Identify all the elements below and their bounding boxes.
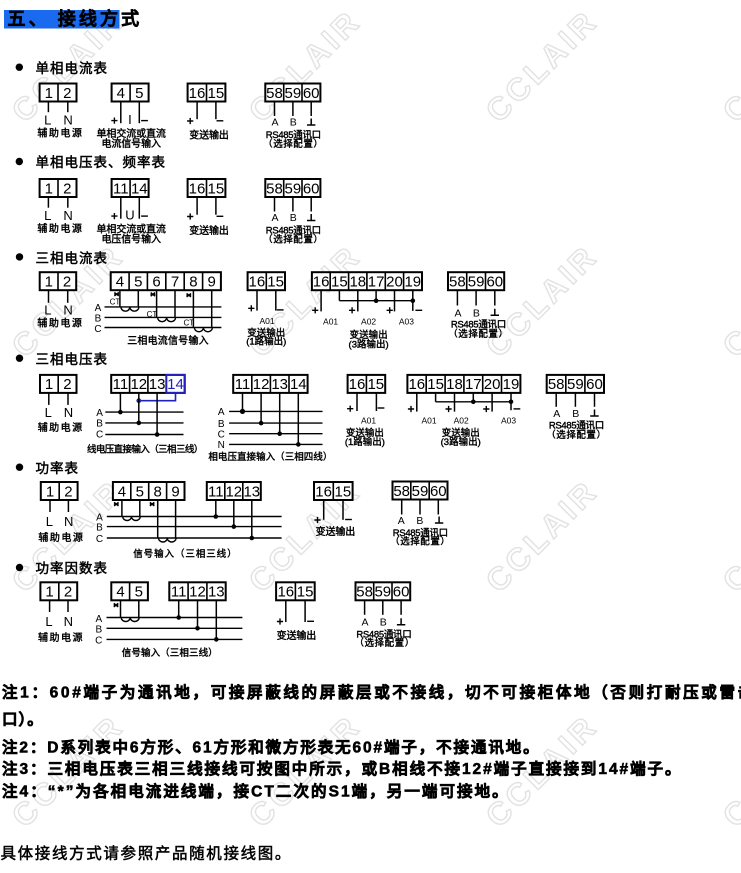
svg-text:59: 59 — [374, 584, 391, 601]
svg-text:A: A — [96, 408, 103, 419]
svg-text:(3路输出): (3路输出) — [441, 436, 481, 448]
svg-text:13: 13 — [149, 376, 166, 393]
svg-text:58: 58 — [266, 85, 283, 102]
svg-text:2: 2 — [63, 85, 71, 102]
svg-text:8: 8 — [189, 274, 197, 291]
svg-text:U: U — [125, 208, 134, 223]
svg-text:相电压直接输入（三相四线）: 相电压直接输入（三相四线） — [208, 451, 332, 463]
svg-text:A: A — [95, 614, 102, 625]
svg-text:五、 接线方式: 五、 接线方式 — [8, 8, 143, 29]
svg-text:（选择配置）: （选择配置） — [546, 429, 606, 441]
svg-text:口）。: 口）。 — [2, 711, 44, 729]
svg-text:11: 11 — [208, 483, 224, 500]
svg-text:59: 59 — [285, 85, 302, 102]
svg-text:14: 14 — [131, 180, 148, 197]
svg-text:单相交流或直流: 单相交流或直流 — [97, 222, 166, 235]
svg-text:59: 59 — [285, 180, 302, 197]
svg-text:15: 15 — [297, 584, 314, 601]
svg-text:2: 2 — [63, 376, 71, 393]
svg-text:A: A — [271, 212, 278, 224]
svg-text:B: B — [95, 625, 102, 636]
svg-text:60: 60 — [586, 376, 603, 393]
svg-text:（选择配置）: （选择配置） — [263, 234, 323, 246]
svg-text:19: 19 — [503, 376, 520, 393]
svg-text:A02: A02 — [454, 415, 469, 425]
svg-text:A01: A01 — [361, 415, 376, 425]
svg-text:N: N — [64, 514, 73, 529]
svg-text:60: 60 — [303, 180, 320, 197]
svg-text:15: 15 — [367, 376, 384, 393]
svg-text:CT: CT — [147, 310, 158, 319]
svg-text:辅助电源: 辅助电源 — [37, 316, 83, 329]
svg-text:(1路输出): (1路输出) — [246, 335, 286, 347]
svg-text:B: B — [96, 419, 103, 430]
svg-text:L: L — [46, 514, 53, 529]
svg-text:59: 59 — [567, 376, 584, 393]
svg-text:辅助电源: 辅助电源 — [38, 421, 84, 434]
svg-text:16: 16 — [189, 85, 206, 102]
svg-text:A: A — [271, 117, 278, 129]
svg-text:变送输出: 变送输出 — [277, 629, 317, 642]
svg-text:5: 5 — [135, 584, 143, 601]
svg-text:60: 60 — [303, 85, 320, 102]
svg-text:N: N — [218, 440, 225, 451]
svg-text:C: C — [96, 534, 103, 545]
svg-text:5: 5 — [135, 85, 143, 102]
svg-text:A: A — [398, 515, 405, 527]
svg-text:20: 20 — [386, 274, 403, 291]
svg-text:注4：“*”为各相电流进线端，接CT二次的S1端，另一端可接: 注4：“*”为各相电流进线端，接CT二次的S1端，另一端可接地。 — [2, 782, 510, 801]
svg-text:电流信号输入: 电流信号输入 — [101, 137, 160, 150]
svg-text:A: A — [454, 307, 461, 319]
svg-text:A01: A01 — [323, 316, 338, 326]
svg-text:辅助电源: 辅助电源 — [38, 531, 84, 544]
svg-text:B: B — [290, 117, 297, 129]
svg-text:14: 14 — [167, 376, 184, 393]
svg-text:9: 9 — [171, 483, 179, 500]
svg-text:三相电流表: 三相电流表 — [36, 251, 109, 266]
svg-text:58: 58 — [266, 180, 283, 197]
svg-text:60: 60 — [486, 274, 503, 291]
svg-text:16: 16 — [313, 274, 330, 291]
svg-text:16: 16 — [277, 584, 294, 601]
svg-text:B: B — [416, 515, 423, 527]
svg-text:15: 15 — [427, 376, 444, 393]
svg-text:2: 2 — [64, 584, 72, 601]
svg-text:12: 12 — [189, 584, 206, 601]
svg-text:13: 13 — [208, 584, 225, 601]
svg-text:16: 16 — [249, 274, 266, 291]
svg-text:5: 5 — [134, 274, 142, 291]
svg-text:A01: A01 — [421, 415, 436, 425]
svg-text:4: 4 — [118, 483, 126, 500]
svg-text:功率因数表: 功率因数表 — [36, 560, 109, 576]
svg-text:11: 11 — [235, 376, 251, 393]
svg-text:B: B — [572, 408, 579, 420]
svg-text:B: B — [380, 617, 387, 629]
svg-text:1: 1 — [45, 376, 53, 393]
svg-text:13: 13 — [243, 483, 260, 500]
svg-text:58: 58 — [548, 376, 565, 393]
svg-text:1: 1 — [45, 584, 53, 601]
svg-text:20: 20 — [484, 376, 501, 393]
svg-text:60: 60 — [430, 483, 447, 500]
svg-text:15: 15 — [267, 274, 284, 291]
svg-text:6: 6 — [152, 274, 160, 291]
svg-text:I: I — [128, 112, 132, 127]
svg-text:单相电压表、频率表: 单相电压表、频率表 — [36, 154, 167, 170]
svg-text:16: 16 — [189, 180, 206, 197]
svg-text:线电压直接输入（三相三线）: 线电压直接输入（三相三线） — [87, 444, 203, 456]
svg-text:2: 2 — [63, 274, 71, 291]
svg-text:11: 11 — [113, 180, 129, 197]
svg-text:CT: CT — [183, 318, 194, 327]
svg-text:变送输出: 变送输出 — [316, 525, 356, 538]
svg-text:A: A — [553, 408, 560, 420]
svg-text:N: N — [63, 303, 72, 318]
svg-text:B: B — [95, 314, 102, 325]
svg-text:16: 16 — [315, 483, 332, 500]
svg-text:5: 5 — [136, 483, 144, 500]
svg-text:（选择配置）: （选择配置） — [263, 138, 323, 150]
svg-text:辅助电源: 辅助电源 — [37, 222, 83, 235]
svg-text:19: 19 — [404, 274, 421, 291]
svg-text:注3：三相电压表三相三线接线可按图中所示，或B相线不接12#: 注3：三相电压表三相三线接线可按图中所示，或B相线不接12#端子直接接到14#端… — [2, 759, 682, 778]
svg-text:（选择配置）: （选择配置） — [448, 328, 508, 340]
svg-text:A02: A02 — [361, 316, 376, 326]
svg-text:18: 18 — [446, 376, 463, 393]
svg-text:三相电压表: 三相电压表 — [36, 352, 109, 367]
svg-text:C: C — [218, 430, 225, 441]
svg-text:N: N — [64, 405, 73, 420]
svg-text:A03: A03 — [399, 316, 414, 326]
svg-text:18: 18 — [349, 274, 366, 291]
svg-text:具体接线方式请参照产品随机接线图。: 具体接线方式请参照产品随机接线图。 — [1, 845, 293, 863]
svg-text:7: 7 — [171, 274, 179, 291]
svg-text:A: A — [218, 407, 225, 418]
svg-text:13: 13 — [271, 376, 288, 393]
svg-text:注2：D系列表中6方形、61方形和微方形表无60#端子，不接: 注2：D系列表中6方形、61方形和微方形表无60#端子，不接通讯地。 — [2, 738, 540, 757]
svg-text:功率表: 功率表 — [36, 460, 80, 476]
svg-text:16: 16 — [408, 376, 425, 393]
svg-text:B: B — [96, 523, 103, 534]
svg-text:59: 59 — [412, 483, 429, 500]
svg-text:11: 11 — [171, 584, 187, 601]
svg-text:信号输入（三相三线）: 信号输入（三相三线） — [133, 548, 237, 560]
svg-text:A: A — [361, 617, 368, 629]
svg-text:1: 1 — [45, 180, 53, 197]
svg-text:4: 4 — [116, 584, 124, 601]
svg-text:单相交流或直流: 单相交流或直流 — [97, 127, 166, 140]
svg-text:注1：60#端子为通讯地，可接屏蔽线的屏蔽层或不接线，切不可: 注1：60#端子为通讯地，可接屏蔽线的屏蔽层或不接线，切不可接柜体地（否则打耐压… — [2, 683, 741, 702]
svg-text:12: 12 — [225, 483, 242, 500]
svg-text:(1路输出): (1路输出) — [345, 436, 385, 448]
svg-text:58: 58 — [356, 584, 373, 601]
svg-text:15: 15 — [208, 180, 225, 197]
svg-text:2: 2 — [63, 180, 71, 197]
svg-text:4: 4 — [116, 274, 124, 291]
svg-text:N: N — [63, 208, 72, 223]
svg-text:58: 58 — [449, 274, 466, 291]
svg-text:C: C — [95, 636, 102, 647]
svg-text:58: 58 — [393, 483, 410, 500]
svg-text:1: 1 — [46, 483, 54, 500]
svg-text:17: 17 — [465, 376, 482, 393]
svg-text:4: 4 — [117, 85, 125, 102]
svg-text:1: 1 — [45, 274, 53, 291]
svg-text:L: L — [44, 208, 51, 223]
svg-text:15: 15 — [335, 483, 352, 500]
svg-text:11: 11 — [113, 376, 129, 393]
svg-text:（选择配置）: （选择配置） — [390, 536, 450, 548]
svg-text:CT: CT — [110, 298, 121, 307]
svg-text:14: 14 — [290, 376, 307, 393]
svg-text:1: 1 — [45, 85, 53, 102]
svg-text:N: N — [63, 112, 72, 127]
svg-text:9: 9 — [208, 274, 216, 291]
svg-text:12: 12 — [253, 376, 270, 393]
svg-text:59: 59 — [468, 274, 485, 291]
svg-text:C: C — [96, 429, 103, 440]
svg-text:N: N — [64, 614, 73, 629]
svg-text:变送输出: 变送输出 — [189, 128, 229, 141]
svg-text:17: 17 — [368, 274, 385, 291]
svg-text:L: L — [45, 614, 52, 629]
svg-text:电压信号输入: 电压信号输入 — [101, 233, 160, 246]
svg-text:(3路输出): (3路输出) — [349, 338, 389, 350]
svg-text:B: B — [218, 419, 225, 430]
svg-text:2: 2 — [64, 483, 72, 500]
svg-text:12: 12 — [130, 376, 147, 393]
svg-text:辅助电源: 辅助电源 — [37, 127, 83, 140]
svg-text:A01: A01 — [259, 316, 274, 326]
svg-text:15: 15 — [331, 274, 348, 291]
svg-text:单相电流表: 单相电流表 — [36, 61, 109, 76]
svg-text:15: 15 — [208, 85, 225, 102]
svg-text:信号输入（三相三线）: 信号输入（三相三线） — [122, 647, 218, 659]
svg-text:L: L — [44, 303, 51, 318]
svg-text:60: 60 — [393, 584, 410, 601]
svg-text:B: B — [290, 212, 297, 224]
svg-text:A03: A03 — [501, 415, 516, 425]
svg-text:L: L — [45, 405, 52, 420]
svg-text:8: 8 — [154, 483, 162, 500]
svg-text:变送输出: 变送输出 — [189, 224, 229, 237]
svg-text:L: L — [44, 112, 51, 127]
svg-text:（选择配置）: （选择配置） — [354, 637, 414, 649]
svg-text:B: B — [473, 307, 480, 319]
svg-text:16: 16 — [349, 376, 366, 393]
svg-text:C: C — [94, 324, 101, 335]
svg-text:三相电流信号输入: 三相电流信号输入 — [127, 334, 209, 347]
svg-text:A: A — [95, 303, 102, 314]
svg-text:辅助电源: 辅助电源 — [38, 631, 84, 644]
